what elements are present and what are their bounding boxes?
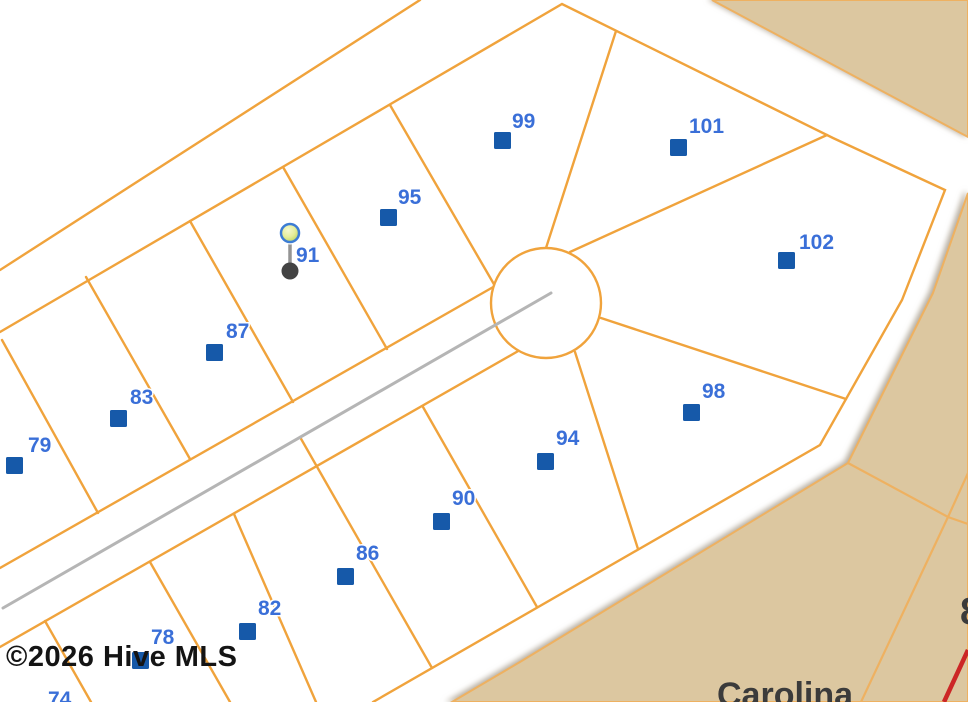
lot-marker-94[interactable] — [537, 453, 554, 470]
lot-marker-79[interactable] — [6, 457, 23, 474]
plat-map-viewport: 79838791959910110298949086827874 ©2026 H… — [0, 0, 968, 702]
lot-marker-98[interactable] — [683, 404, 700, 421]
lot-marker-86[interactable] — [337, 568, 354, 585]
cul-de-sac-circle — [491, 248, 601, 358]
lot-marker-82[interactable] — [239, 623, 256, 640]
lot-label-95: 95 — [398, 186, 422, 209]
lot-label-83: 83 — [130, 386, 153, 409]
lot-label-82: 82 — [258, 597, 281, 620]
lot-marker-90[interactable] — [433, 513, 450, 530]
lot-label-90: 90 — [452, 487, 475, 510]
lot-marker-83[interactable] — [110, 410, 127, 427]
plat-map: 79838791959910110298949086827874 ©2026 H… — [0, 0, 968, 702]
lot-label-86: 86 — [356, 542, 379, 565]
lot-label-79: 79 — [28, 434, 51, 457]
lot-marker-102[interactable] — [778, 252, 795, 269]
lot-label-74: 74 — [48, 688, 72, 702]
place-label-carolina: Carolina — [717, 676, 854, 702]
lot-marker-87[interactable] — [206, 344, 223, 361]
lot-marker-95[interactable] — [380, 209, 397, 226]
pin-head — [281, 224, 299, 242]
lot-label-101: 101 — [689, 115, 724, 138]
lot-marker-99[interactable] — [494, 132, 511, 149]
edge-partial-label: 8 — [960, 591, 968, 633]
mls-watermark: ©2026 Hive MLS — [6, 641, 237, 673]
lot-marker-101[interactable] — [670, 139, 687, 156]
lot-label-94: 94 — [556, 427, 580, 450]
lot-label-87: 87 — [226, 320, 249, 343]
lot-label-102: 102 — [799, 231, 834, 254]
lot-label-91: 91 — [296, 244, 320, 267]
lot-label-99: 99 — [512, 110, 535, 133]
lot-label-98: 98 — [702, 380, 726, 403]
